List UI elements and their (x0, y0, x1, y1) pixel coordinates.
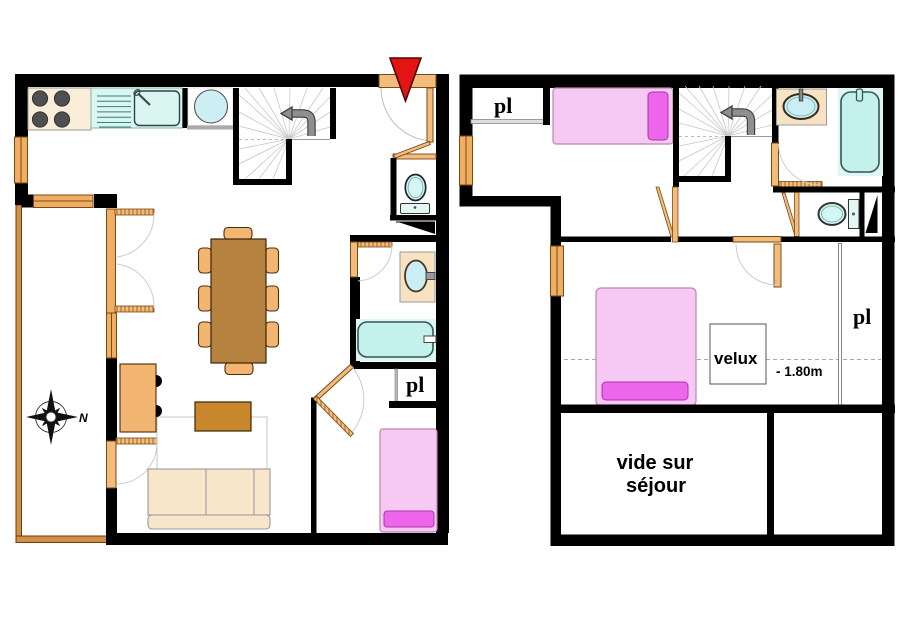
svg-text:pl: pl (406, 372, 424, 397)
svg-text:velux: velux (714, 349, 758, 368)
svg-text:pl: pl (853, 304, 871, 329)
svg-text:N: N (79, 411, 88, 425)
svg-text:- 1.80m: - 1.80m (776, 364, 823, 379)
svg-text:vide sur: vide sur (617, 452, 694, 474)
svg-text:séjour: séjour (626, 475, 686, 497)
svg-text:pl: pl (494, 93, 512, 118)
